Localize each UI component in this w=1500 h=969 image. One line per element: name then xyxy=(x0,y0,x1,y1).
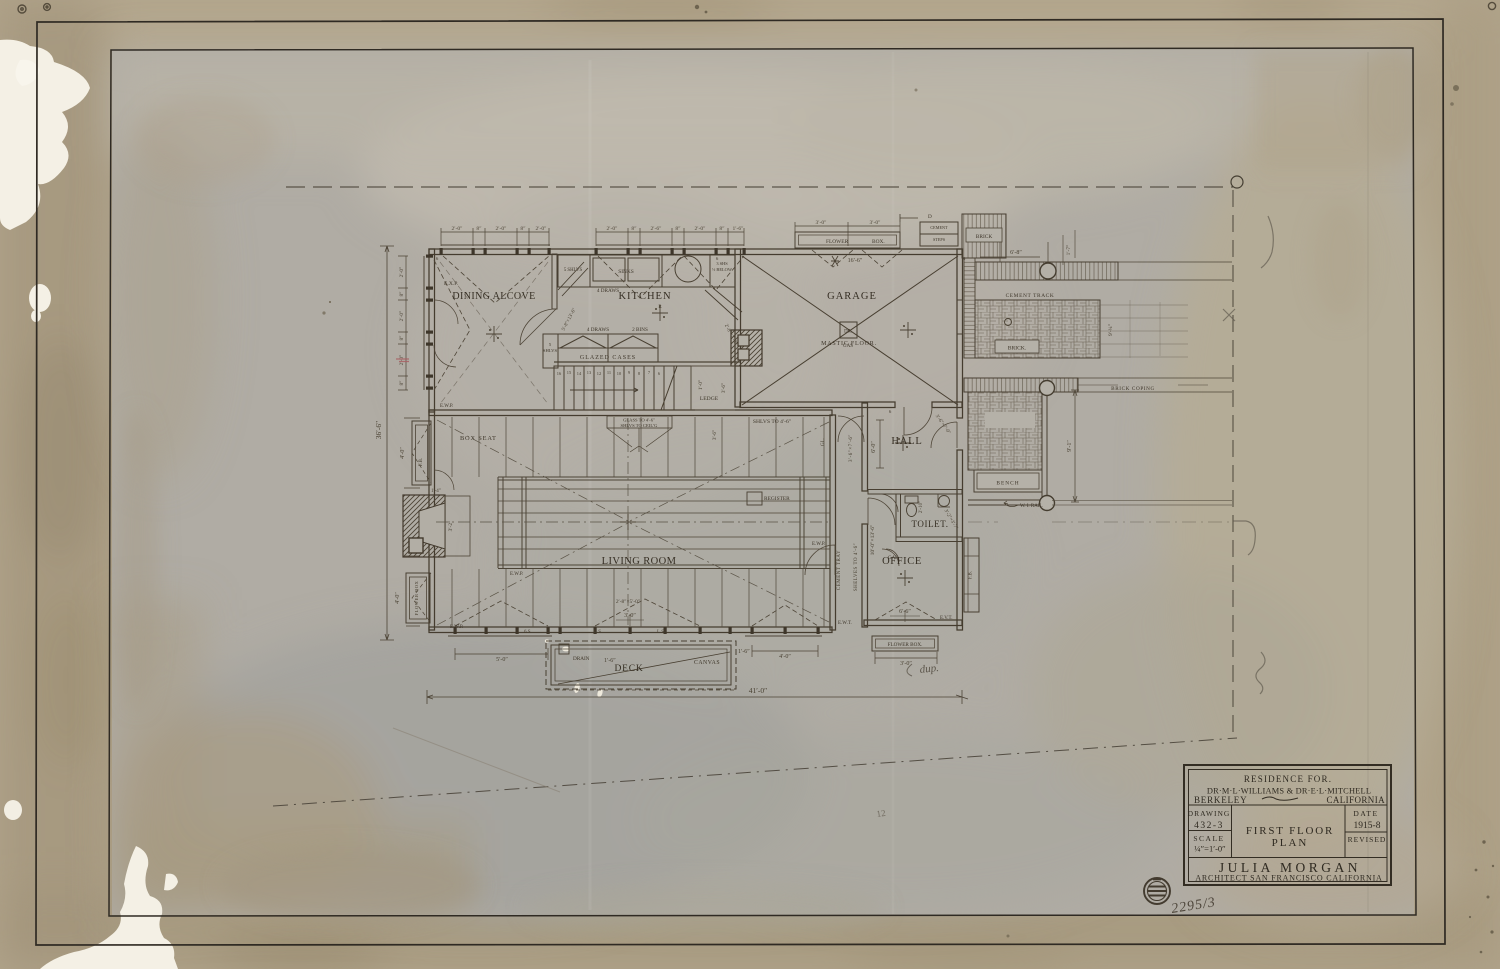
svg-text:F.B.: F.B. xyxy=(419,458,424,466)
svg-text:dup.: dup. xyxy=(919,662,939,676)
svg-text:3′-6″×7′-6″: 3′-6″×7′-6″ xyxy=(849,434,854,462)
svg-text:12: 12 xyxy=(876,808,886,819)
svg-text:3′-6″: 3′-6″ xyxy=(721,383,727,393)
svg-text:6′-0″: 6′-0″ xyxy=(871,441,877,453)
svg-text:2′-0″: 2′-0″ xyxy=(495,226,507,232)
svg-text:4′-0″: 4′-0″ xyxy=(395,592,401,604)
svg-text:STEPS: STEPS xyxy=(933,237,946,242)
svg-text:HALL: HALL xyxy=(891,436,922,447)
svg-text:GLASS TO 4′-6″: GLASS TO 4′-6″ xyxy=(623,418,655,423)
svg-text:REGISTER: REGISTER xyxy=(764,496,790,502)
svg-text:3′-0″: 3′-0″ xyxy=(815,220,827,226)
svg-text:FIRST FLOOR: FIRST FLOOR xyxy=(1246,825,1334,837)
svg-text:E.W.P.: E.W.P. xyxy=(510,572,523,577)
svg-text:E.W.P.: E.W.P. xyxy=(440,404,453,409)
svg-text:RESIDENCE FOR.: RESIDENCE FOR. xyxy=(1244,774,1332,784)
svg-text:1′-6″: 1′-6″ xyxy=(732,226,744,232)
svg-text:GLAZED CASES: GLAZED CASES xyxy=(580,355,636,361)
svg-text:W. I. RAIL: W. I. RAIL xyxy=(1020,504,1043,509)
svg-text:10′-0″×13′-6″: 10′-0″×13′-6″ xyxy=(870,524,876,555)
svg-text:DRAIN: DRAIN xyxy=(573,656,590,662)
svg-text:LEDGE: LEDGE xyxy=(700,396,719,402)
svg-text:L.S.: L.S. xyxy=(594,630,602,635)
svg-text:½ BELOW: ½ BELOW xyxy=(712,267,733,272)
svg-text:GARAGE: GARAGE xyxy=(827,291,877,302)
svg-text:OFFICE: OFFICE xyxy=(882,556,922,567)
svg-text:6.S.: 6.S. xyxy=(524,630,532,635)
svg-text:3 SHS: 3 SHS xyxy=(716,261,728,266)
svg-text:CEMENT TRACK: CEMENT TRACK xyxy=(1006,293,1055,299)
svg-text:1′-7″: 1′-7″ xyxy=(1066,245,1072,256)
svg-text:2 BINS: 2 BINS xyxy=(632,327,648,333)
svg-text:8″: 8″ xyxy=(520,226,526,232)
svg-text:SHLVS TO 4′-6″: SHLVS TO 4′-6″ xyxy=(753,419,792,425)
svg-text:2′-8″×5′-0″: 2′-8″×5′-0″ xyxy=(616,599,640,605)
svg-text:FLOWER: FLOWER xyxy=(826,239,849,245)
svg-text:11: 11 xyxy=(607,370,611,375)
svg-text:4 DRAWS: 4 DRAWS xyxy=(597,288,619,294)
svg-text:9′-1″: 9′-1″ xyxy=(1067,440,1073,452)
svg-text:TOILET.: TOILET. xyxy=(911,519,948,529)
svg-text:2′-0″: 2′-0″ xyxy=(694,226,706,232)
svg-text:3′-0″: 3′-0″ xyxy=(869,220,881,226)
svg-text:8″: 8″ xyxy=(675,226,681,232)
svg-text:2′-0″: 2′-0″ xyxy=(399,355,405,366)
svg-text:CEMENT TRAY: CEMENT TRAY xyxy=(837,550,842,590)
svg-text:2′-6″: 2′-6″ xyxy=(650,226,662,232)
svg-text:432-3: 432-3 xyxy=(1194,821,1224,831)
svg-text:6′-8″: 6′-8″ xyxy=(1010,250,1022,256)
svg-text:BOX.: BOX. xyxy=(872,239,885,245)
svg-text:9′-¼″: 9′-¼″ xyxy=(1108,324,1114,336)
svg-text:8″: 8″ xyxy=(719,226,725,232)
svg-text:L.S.: L.S. xyxy=(657,630,665,635)
svg-text:1915-8: 1915-8 xyxy=(1354,821,1381,831)
svg-text:BRICK: BRICK xyxy=(976,234,993,240)
svg-text:2′-0″: 2′-0″ xyxy=(535,226,547,232)
svg-text:FLOWER BOX.: FLOWER BOX. xyxy=(888,642,923,648)
svg-text:1′-6″: 1′-6″ xyxy=(738,649,750,655)
svg-text:1′-0″: 1′-0″ xyxy=(698,380,704,390)
svg-text:DATE: DATE xyxy=(1353,809,1378,818)
svg-text:E.V.T.: E.V.T. xyxy=(940,616,952,621)
svg-text:D: D xyxy=(928,214,932,220)
svg-text:BOX SEAT: BOX SEAT xyxy=(460,435,497,442)
svg-text:CANVAS: CANVAS xyxy=(694,660,720,666)
svg-text:2′-0″: 2′-0″ xyxy=(399,311,405,322)
svg-text:8″: 8″ xyxy=(399,381,405,386)
svg-text:DRAWING: DRAWING xyxy=(1188,809,1231,818)
svg-text:F.B.: F.B. xyxy=(969,571,974,579)
svg-text:36′-6″: 36′-6″ xyxy=(374,421,383,440)
svg-text:SCALE: SCALE xyxy=(1193,834,1224,843)
svg-text:E.W.T.: E.W.T. xyxy=(838,621,852,626)
svg-text:BRICK COPING: BRICK COPING xyxy=(1111,386,1155,392)
svg-text:E.W.P.: E.W.P. xyxy=(812,542,825,547)
svg-text:1′-6″: 1′-6″ xyxy=(604,658,616,664)
svg-text:SINKS: SINKS xyxy=(618,269,634,275)
svg-text:2′-0″: 2′-0″ xyxy=(399,267,405,278)
svg-text:SHLVS: SHLVS xyxy=(543,348,558,353)
svg-text:8″: 8″ xyxy=(631,226,637,232)
svg-text:E.X.P.: E.X.P. xyxy=(444,281,459,287)
svg-text:8″: 8″ xyxy=(399,292,405,297)
svg-text:GAS: GAS xyxy=(843,344,853,349)
svg-text:CEMENT: CEMENT xyxy=(930,225,948,230)
svg-text:PLAN: PLAN xyxy=(1272,837,1309,849)
svg-text:1′-4″: 1′-4″ xyxy=(431,489,441,494)
svg-text:DINING ALCOVE: DINING ALCOVE xyxy=(452,291,535,302)
svg-text:3′-0″: 3′-0″ xyxy=(900,661,912,667)
svg-text:CALIFORNIA: CALIFORNIA xyxy=(1326,795,1385,805)
svg-text:4 DRAWS: 4 DRAWS xyxy=(587,327,609,333)
svg-text:¼″=1′-0″: ¼″=1′-0″ xyxy=(1194,844,1226,854)
svg-text:FLOWER BOX: FLOWER BOX xyxy=(414,580,419,615)
svg-text:SHLVS TO CEIL′G: SHLVS TO CEIL′G xyxy=(621,423,659,428)
svg-text:4′-0″: 4′-0″ xyxy=(779,654,791,660)
svg-text:BENCH: BENCH xyxy=(996,481,1019,487)
svg-text:8″: 8″ xyxy=(476,226,482,232)
svg-text:BERKELEY: BERKELEY xyxy=(1194,795,1247,805)
svg-text:41′-0″: 41′-0″ xyxy=(749,686,768,695)
svg-text:2′-0″: 2′-0″ xyxy=(606,226,618,232)
svg-text:4′-0″: 4′-0″ xyxy=(400,447,406,459)
svg-text:8″: 8″ xyxy=(399,336,405,341)
svg-text:ARCHITECT SAN FRANCISCO CALIFO: ARCHITECT SAN FRANCISCO CALIFORNIA xyxy=(1195,874,1382,883)
svg-text:LIVING ROOM: LIVING ROOM xyxy=(602,556,677,567)
svg-text:16′-6″: 16′-6″ xyxy=(848,258,863,264)
svg-text:BRICK.: BRICK. xyxy=(1008,346,1027,352)
svg-text:2′-0″: 2′-0″ xyxy=(451,226,463,232)
svg-text:2′-10″: 2′-10″ xyxy=(919,501,924,513)
svg-text:DECK: DECK xyxy=(614,664,643,674)
svg-text:E.W.P.: E.W.P. xyxy=(450,625,463,630)
svg-text:GL.: GL. xyxy=(821,438,826,446)
svg-text:SHELVES TO 4′-6″: SHELVES TO 4′-6″ xyxy=(854,543,859,591)
svg-text:5 SHLVS: 5 SHLVS xyxy=(564,268,583,273)
svg-text:3′-6″: 3′-6″ xyxy=(712,430,718,440)
svg-text:DR.: DR. xyxy=(844,330,852,335)
svg-text:5′-0″: 5′-0″ xyxy=(496,657,508,663)
svg-text:REVISED: REVISED xyxy=(1348,835,1387,844)
svg-text:KITCHEN: KITCHEN xyxy=(618,291,671,302)
svg-text:12: 12 xyxy=(597,371,601,376)
